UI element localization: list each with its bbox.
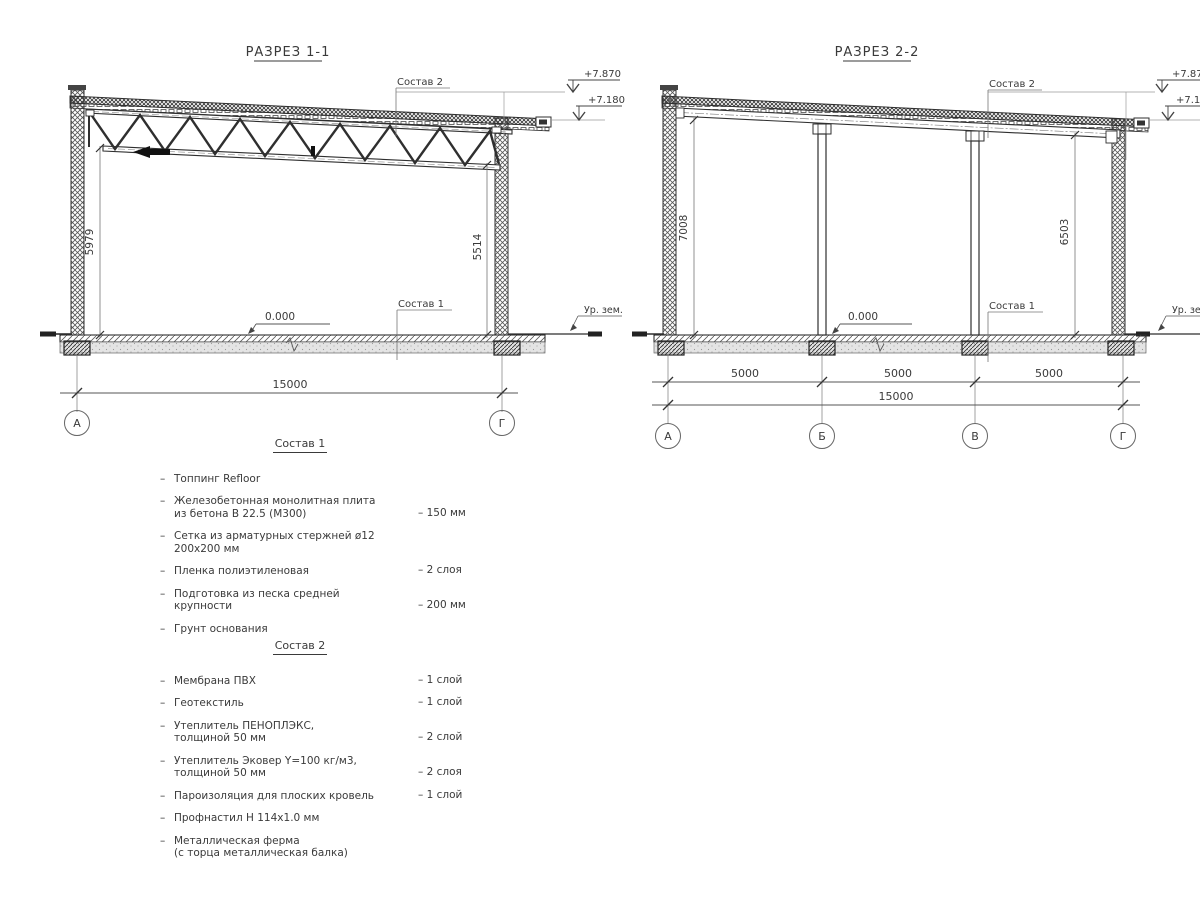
- dimension-label: 5000: [731, 367, 759, 380]
- svg-text:В: В: [971, 430, 979, 443]
- list-item: –Геотекстиль– 1 слой: [160, 697, 500, 710]
- ground-level-label: Ур. зем.: [1158, 305, 1200, 331]
- dimension-label: 7008: [678, 215, 690, 242]
- svg-text:Г: Г: [499, 417, 506, 430]
- dimension-label: 15000: [879, 390, 914, 403]
- list-item-value: – 2 слоя: [418, 766, 462, 779]
- list-item: –Утеплитель ПЕНОПЛЭКС,толщиной 50 мм– 2 …: [160, 720, 500, 745]
- svg-text:+7.870: +7.870: [584, 69, 621, 80]
- ground-level-label: Ур. зем.: [570, 305, 623, 331]
- svg-text:0.000: 0.000: [265, 311, 295, 323]
- list-item-value: – 2 слой: [418, 731, 462, 744]
- svg-text:А: А: [73, 417, 81, 430]
- right-wall: [1112, 119, 1125, 335]
- list-item-value: – 150 мм: [418, 507, 466, 520]
- column-v: [966, 131, 984, 335]
- list-item: –Утеплитель Эковер Y=100 кг/м3,толщиной …: [160, 755, 500, 780]
- svg-text:Б: Б: [818, 430, 826, 443]
- svg-text:Состав 1: Состав 1: [989, 301, 1035, 312]
- dim-height-right: [1071, 131, 1079, 339]
- list-item: –Подготовка из песка среднейкрупности– 2…: [160, 588, 500, 613]
- svg-text:Ур. зем.: Ур. зем.: [584, 305, 623, 316]
- svg-text:Состав 2: Состав 2: [397, 77, 443, 88]
- dimension-label: 15000: [273, 378, 308, 391]
- section-1-1: РАЗРЕЗ 1-1: [40, 45, 625, 436]
- dimension-label: 5000: [884, 367, 912, 380]
- list-item-value: – 1 слой: [418, 696, 462, 709]
- svg-text:Ур. зем.: Ур. зем.: [1172, 305, 1200, 316]
- svg-text:Г: Г: [1120, 430, 1127, 443]
- svg-text:+7.180: +7.180: [1176, 95, 1200, 106]
- axis-bubble-g: Г: [490, 411, 515, 436]
- axis-bubble-a: А: [65, 411, 90, 436]
- axis-bubble-b: Б: [810, 424, 835, 449]
- list-item: –Топпинг Refloor: [160, 473, 500, 486]
- svg-text:0.000: 0.000: [848, 311, 878, 323]
- zero-level-mark: 0.000: [248, 311, 330, 334]
- dim-height-right: [483, 161, 491, 339]
- list-item: –Сетка из арматурных стержней ø12 200х20…: [160, 530, 500, 555]
- elevation-mark-low: +7.180: [1150, 95, 1200, 120]
- dimension-label: 5000: [1035, 367, 1063, 380]
- list-item-value: – 1 слой: [418, 789, 462, 802]
- list-item: –Пароизоляция для плоских кровель– 1 сло…: [160, 790, 500, 803]
- axis-bubble-a: А: [656, 424, 681, 449]
- svg-text:А: А: [664, 430, 672, 443]
- list-item-value: – 2 слоя: [418, 564, 462, 577]
- dimension-label: 6503: [1059, 219, 1071, 246]
- axis-bubble-v: В: [963, 424, 988, 449]
- list-item-value: – 200 мм: [418, 599, 466, 612]
- svg-text:+7.180: +7.180: [588, 95, 625, 106]
- list-item: –Грунт основания: [160, 623, 500, 636]
- list-item: –Профнастил Н 114х1.0 мм: [160, 812, 500, 825]
- list-heading: Состав 2: [273, 640, 328, 655]
- composition-list-2: Состав 2 –Мембрана ПВХ– 1 слой–Геотексти…: [160, 640, 500, 870]
- left-wall: [68, 85, 86, 335]
- list-heading: Состав 1: [273, 438, 328, 453]
- svg-text:Состав 1: Состав 1: [398, 299, 444, 310]
- chord-connector: [311, 146, 315, 156]
- section-title: РАЗРЕЗ 1-1: [246, 45, 331, 60]
- dimension-label: 5514: [472, 233, 484, 260]
- left-wall: [660, 85, 678, 335]
- dim-height-left: [690, 116, 698, 339]
- dim-height-left: [96, 144, 104, 339]
- axis-bubble-g: Г: [1111, 424, 1136, 449]
- elevation-mark-low: +7.180: [551, 95, 625, 120]
- list-item: –Мембрана ПВХ– 1 слой: [160, 675, 500, 688]
- composition-list-1: Состав 1 –Топпинг Refloor–Железобетонная…: [160, 438, 500, 645]
- section-title: РАЗРЕЗ 2-2: [835, 45, 920, 60]
- section-2-2: РАЗРЕЗ 2-2: [632, 45, 1200, 449]
- list-item: –Металлическая ферма(с торца металлическ…: [160, 835, 500, 860]
- svg-text:+7.870: +7.870: [1172, 69, 1200, 80]
- svg-text:Состав 2: Состав 2: [989, 79, 1035, 90]
- column-b: [813, 124, 831, 335]
- list-item: –Пленка полиэтиленовая– 2 слоя: [160, 565, 500, 578]
- drawing-sheet: РАЗРЕЗ 1-1: [0, 0, 1200, 900]
- zero-level-mark: 0.000: [832, 311, 912, 334]
- list-item-value: – 1 слой: [418, 674, 462, 687]
- right-wall: [495, 118, 508, 335]
- floor-slab: [60, 335, 545, 353]
- list-item: –Железобетонная монолитная плитаиз бетон…: [160, 495, 500, 520]
- dimension-label: 5979: [84, 229, 96, 256]
